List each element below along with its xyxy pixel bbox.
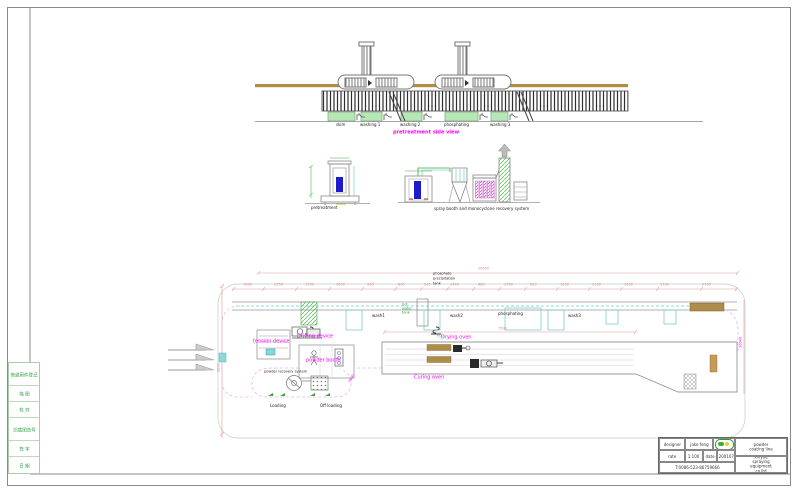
dimension-label: 950 xyxy=(367,283,374,287)
dimension-label-right-curve: 10040 xyxy=(739,337,743,348)
ovens xyxy=(382,342,737,392)
company-name: xinyue spraying equipment co.ltd xyxy=(749,456,774,473)
dimension-label: 800 xyxy=(398,283,405,287)
powder-booth-label: powder booth xyxy=(306,358,341,363)
margin-row-label: 借通用件登记 xyxy=(11,371,38,378)
side-view-drawing xyxy=(255,42,703,122)
left-marker xyxy=(219,353,226,362)
dimension-label: 2150 xyxy=(592,283,601,287)
margin-table-row: 日 期 xyxy=(9,457,39,473)
title-block: designer jake feng rate 1:100 date 20010… xyxy=(658,437,788,474)
tank-label-phosphating: phosphating xyxy=(444,123,469,127)
section-arrows xyxy=(168,344,214,370)
pretreatment-caption: pretreatment xyxy=(311,206,338,210)
hot-water-booth xyxy=(417,299,428,326)
scale-value: 1:100 xyxy=(688,454,700,459)
tension-device-symbol xyxy=(257,330,290,359)
dimension-label: 1700 xyxy=(660,283,669,287)
designer-label: designer xyxy=(663,442,680,447)
plan-label-wash3: wash3 xyxy=(568,314,581,318)
exhaust-arrow-icon xyxy=(499,144,511,157)
company-cell: xinyue spraying equipment co.ltd xyxy=(735,456,787,473)
date-value: 200107 xyxy=(718,454,733,459)
side-view-title: pretreatment side view xyxy=(393,130,459,135)
dimension-label-total: 26050 xyxy=(478,267,489,271)
phone-cell: T:0086-523-86759666 xyxy=(659,462,735,473)
margin-table-row: 签 字 xyxy=(9,441,39,457)
scale-label-cell: rate xyxy=(659,450,685,462)
precip-note-line3: tank xyxy=(433,282,441,286)
drive-unit-tan xyxy=(690,303,724,311)
loading-markers xyxy=(268,393,330,396)
tension-device-label: tension device xyxy=(253,339,289,344)
precip-note-line2: precipitation xyxy=(433,277,455,281)
margin-row-label: 签 字 xyxy=(19,445,29,452)
dimension-label: 1445 xyxy=(450,283,459,287)
oven-burner-motors xyxy=(453,345,503,368)
margin-table-row: 校 对 xyxy=(9,402,39,418)
dimension-label-pitch: 7500 xyxy=(436,335,445,339)
drawing-sheet: skim washing 1 washing 2 phosphating was… xyxy=(0,0,800,493)
pretreatment-elevation xyxy=(305,158,370,205)
plan-label-wash2: wash2 xyxy=(450,314,463,318)
phone-number: T:0086-523-86759666 xyxy=(675,465,719,470)
dimension-label: 3000 xyxy=(336,283,345,287)
tank-label-washing3: washing 3 xyxy=(490,123,510,127)
date-value-cell: 200107 xyxy=(717,450,735,462)
dimension-label: 1700 xyxy=(504,283,513,287)
filter-cartridges xyxy=(476,181,495,198)
margin-table-row: 借通用件登记 xyxy=(9,363,39,386)
tank-label-washing1: washing 1 xyxy=(360,123,380,127)
curing-oven-label: Curing oven xyxy=(414,375,444,380)
dimension-label: 620 xyxy=(530,283,537,287)
margin-table-row: 旧底图总号 xyxy=(9,418,39,441)
dimension-label: 2250 xyxy=(274,283,283,287)
date-label-cell: date xyxy=(703,450,717,462)
drying-oven-label: Drying oven xyxy=(441,335,471,340)
margin-table-row: 描 图 xyxy=(9,386,39,402)
tank-label-washing2: washing 2 xyxy=(400,123,420,127)
precip-note-line1: phosphate xyxy=(433,272,452,276)
off-loading-label: Off loading xyxy=(320,404,342,408)
tank-label-skim: skim xyxy=(336,123,345,127)
powder-recovery-label: powder recovery system xyxy=(264,370,307,374)
dimension-label: 945 xyxy=(424,283,431,287)
product-cell: powder coating line xyxy=(735,438,787,456)
scale-value-cell: 1:100 xyxy=(685,450,703,462)
margin-row-label: 日 期 xyxy=(19,462,29,469)
load-station-hatch xyxy=(301,302,317,325)
recovery-system-elevation xyxy=(398,144,540,203)
dimension-label: 880 xyxy=(478,283,485,287)
plan-view-drawing xyxy=(168,271,745,438)
margin-row-label: 描 图 xyxy=(19,390,29,397)
designer-label-cell: designer xyxy=(659,438,685,450)
drawing-linework xyxy=(0,0,800,493)
loading-label: Loading xyxy=(270,404,286,408)
dimension-label: 1500 xyxy=(243,283,252,287)
dimension-label-left-height: 6600 xyxy=(217,363,221,372)
company-logo-icon xyxy=(715,439,734,450)
scale-label: rate xyxy=(668,454,676,459)
workpiece-blue xyxy=(336,177,343,192)
pretreatment-tanks xyxy=(328,112,508,121)
margin-row-label: 旧底图总号 xyxy=(13,426,36,433)
hot-water-line3: tank xyxy=(402,311,410,315)
product-name: powder coating line xyxy=(749,442,774,451)
dimension-label: 2700 xyxy=(702,283,711,287)
margin-revision-table: 借通用件登记 描 图 校 对 旧底图总号 签 字 日 期 xyxy=(8,362,40,474)
margin-row-label: 校 对 xyxy=(19,406,29,413)
driving-device-label: Driving device xyxy=(297,334,333,339)
designer-value-cell: jake feng xyxy=(685,438,713,450)
dimension-label: 1050 xyxy=(560,283,569,287)
conveyor-rail-hatch xyxy=(322,91,628,111)
exhaust-hood-2 xyxy=(435,42,511,89)
dimension-label: 1700 xyxy=(305,283,314,287)
designer-value: jake feng xyxy=(690,442,708,447)
logo-cell xyxy=(713,438,735,450)
plan-label-phosphating: phosphating xyxy=(498,312,523,316)
plan-label-wash1: wash1 xyxy=(372,314,385,318)
booth-opening-blue xyxy=(414,181,421,199)
date-label: date xyxy=(705,454,714,459)
exhaust-hood-1 xyxy=(338,42,414,89)
dimension-label: 1500 xyxy=(624,283,633,287)
recovery-caption: spray booth and monocyclone recovery sys… xyxy=(434,207,529,211)
dimension-label-oven: 7500 xyxy=(498,327,507,331)
